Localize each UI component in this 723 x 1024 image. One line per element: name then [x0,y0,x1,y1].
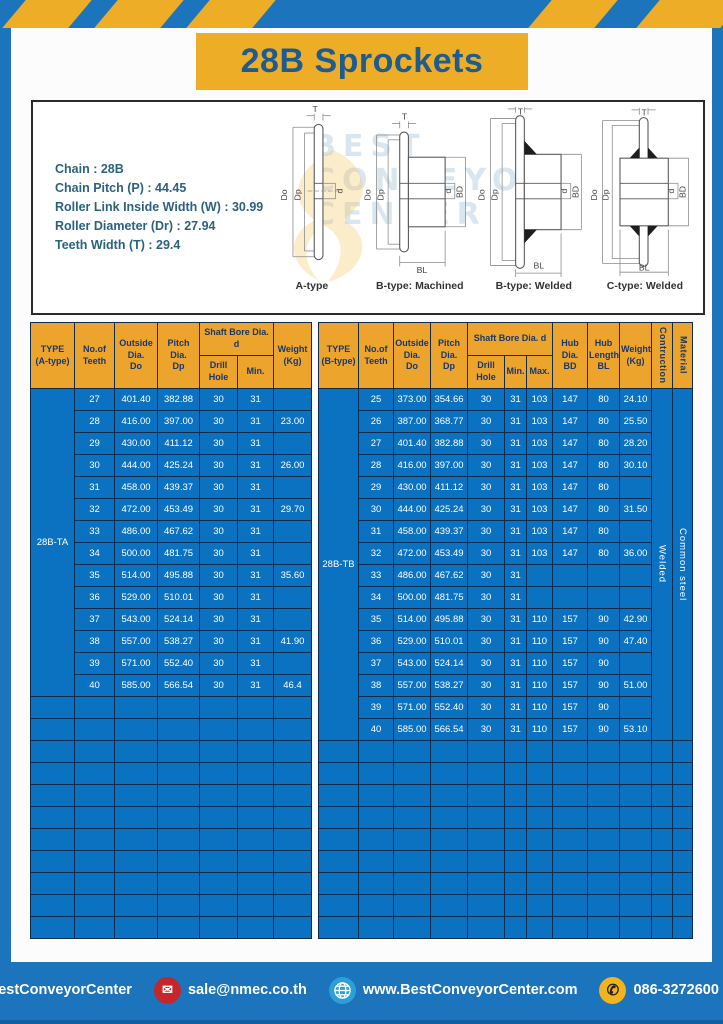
data-cell: 31 [505,521,527,543]
empty-cell [158,895,200,917]
data-cell: 103 [527,389,553,411]
data-cell: 30 [200,675,238,697]
data-cell: 80 [588,477,620,499]
data-cell: 147 [553,521,588,543]
footer-contact-bar: f LINE @BestConveyorCenter ✉ sale@nmec.c… [0,962,723,1024]
data-cell [620,565,652,587]
sprocket-table-b: TYPE (B-type)No.of TeethOutside Dia. DoP… [318,322,693,939]
data-cell: 38 [75,631,115,653]
data-cell: 543.00 [394,653,431,675]
data-cell [588,587,620,609]
empty-cell [31,741,75,763]
header-cell: Pitch Dia. Dp [158,323,200,389]
empty-cell [505,741,527,763]
material-cell: Common steel [673,389,693,741]
data-cell: 103 [527,521,553,543]
data-cell: 500.00 [115,543,158,565]
data-cell: 31 [505,499,527,521]
empty-table-row [31,763,312,785]
empty-cell [238,873,274,895]
data-cell: 566.54 [158,675,200,697]
empty-cell [553,829,588,851]
data-cell: 31 [505,455,527,477]
data-cell: 110 [527,653,553,675]
empty-cell [75,719,115,741]
dim-label-bd: BD [454,186,464,198]
data-cell: 439.37 [158,477,200,499]
data-cell: 39 [75,653,115,675]
data-cell: 571.00 [115,653,158,675]
data-cell: 30 [200,631,238,653]
header-cell: Hub Dia. BD [553,323,588,389]
empty-cell [158,829,200,851]
data-cell: 31 [238,521,274,543]
data-cell: 30 [75,455,115,477]
data-cell [274,543,312,565]
header-cell: TYPE (A-type) [31,323,75,389]
spec-diagram-panel: BEST CONVEYOR CENTER Chain : 28B Chain P… [31,100,705,315]
table-row: 34500.00481.753031 [319,587,693,609]
data-cell: 30 [468,675,505,697]
data-cell: 24.10 [620,389,652,411]
data-cell: 30 [200,411,238,433]
data-cell: 30 [468,455,505,477]
data-cell: 31 [505,411,527,433]
empty-cell [200,851,238,873]
empty-cell [359,851,394,873]
data-cell [620,521,652,543]
table-row: 38557.00538.2730311101579051.00 [319,675,693,697]
data-cell: 40 [75,675,115,697]
data-cell: 31 [505,631,527,653]
data-cell: 486.00 [115,521,158,543]
empty-cell [200,741,238,763]
sprocket-diagrams: T Do Dp d A-type [261,106,699,306]
empty-cell [238,785,274,807]
data-cell: 552.40 [431,697,468,719]
data-cell: 30 [200,477,238,499]
table-row: 33486.00467.623031 [319,565,693,587]
data-cell: 27 [75,389,115,411]
data-cell: 51.00 [620,675,652,697]
empty-cell [553,807,588,829]
empty-cell [588,741,620,763]
data-cell: 157 [553,719,588,741]
empty-cell [115,741,158,763]
data-cell: 585.00 [115,675,158,697]
data-cell: 147 [553,389,588,411]
data-cell [527,565,553,587]
empty-cell [200,785,238,807]
empty-cell [359,785,394,807]
footer-website-group: www.BestConveyorCenter.com [329,977,578,1004]
data-cell: 33 [75,521,115,543]
data-cell: 31 [238,411,274,433]
empty-cell [620,741,652,763]
header-cell: Shaft Bore Dia. d [468,323,553,356]
empty-cell [620,895,652,917]
empty-cell [31,829,75,851]
empty-table-row [31,741,312,763]
data-cell: 90 [588,719,620,741]
empty-cell [431,873,468,895]
empty-cell [527,741,553,763]
empty-cell [527,829,553,851]
empty-cell [115,807,158,829]
data-cell: 25.50 [620,411,652,433]
dim-label-bl: BL [416,265,427,275]
empty-cell [527,763,553,785]
data-cell [620,653,652,675]
empty-cell [359,895,394,917]
header-cell: Max. [527,356,553,389]
data-cell [274,609,312,631]
data-cell: 31 [238,587,274,609]
data-cell: 147 [553,411,588,433]
dim-label-dp: Dp [375,189,385,200]
header-cell: Min. [238,356,274,389]
data-cell: 31 [238,565,274,587]
empty-cell [468,873,505,895]
data-cell: 368.77 [431,411,468,433]
diagram-label-a: A-type [296,280,329,292]
data-cell: 31 [238,433,274,455]
data-cell: 30 [200,653,238,675]
data-cell: 382.88 [431,433,468,455]
data-cell: 387.00 [394,411,431,433]
empty-cell [394,917,431,939]
dim-label-bl: BL [639,262,650,272]
empty-cell [468,763,505,785]
data-cell: 110 [527,697,553,719]
data-cell: 31 [505,565,527,587]
dim-label-d: d [334,188,344,193]
empty-table-row [319,785,693,807]
empty-cell [527,895,553,917]
data-cell: 524.14 [431,653,468,675]
data-cell: 416.00 [394,455,431,477]
table-row: 31458.00439.37303110314780 [319,521,693,543]
empty-cell [588,807,620,829]
empty-cell [468,917,505,939]
data-cell: 354.66 [431,389,468,411]
empty-cell [553,873,588,895]
empty-cell [588,895,620,917]
table-row: 36529.00510.0130311101579047.40 [319,631,693,653]
empty-cell [158,763,200,785]
data-cell: 42.90 [620,609,652,631]
data-cell: 147 [553,477,588,499]
data-cell: 47.40 [620,631,652,653]
empty-cell [468,895,505,917]
empty-cell [527,807,553,829]
empty-cell [527,851,553,873]
top-hazard-stripes [0,0,723,28]
data-cell: 382.88 [158,389,200,411]
empty-table-row [319,807,693,829]
empty-cell [274,741,312,763]
empty-cell [75,697,115,719]
stripe [94,0,183,28]
empty-cell [75,763,115,785]
data-cell: 40 [359,719,394,741]
data-cell: 472.00 [394,543,431,565]
empty-cell [359,873,394,895]
table-b-body: 28B-TB25373.00354.6630311031478024.10Wel… [319,389,693,939]
empty-cell [75,917,115,939]
table-row: 27401.40382.8830311031478028.20 [319,433,693,455]
empty-cell [115,917,158,939]
data-cell: 103 [527,455,553,477]
empty-cell [238,719,274,741]
data-cell: 30 [200,565,238,587]
data-cell: 31 [359,521,394,543]
catalog-page: 28B Sprockets BEST CONVEYOR CENTER Chain… [0,0,723,1024]
data-cell: 31 [505,477,527,499]
type-cell: 28B-TA [31,389,75,697]
b-type-machined-drawing: T Do Dp d BD BL [363,106,477,278]
data-cell: 30 [468,719,505,741]
globe-icon [329,977,356,1004]
data-cell: 458.00 [394,521,431,543]
data-cell: 29.70 [274,499,312,521]
empty-cell [553,763,588,785]
data-cell: 30 [468,389,505,411]
empty-cell [359,741,394,763]
table-row: 28416.00397.0030311031478030.10 [319,455,693,477]
data-cell: 28 [359,455,394,477]
dim-label-dp: Dp [489,189,499,200]
empty-cell [394,785,431,807]
spec-line-teeth: Teeth Width (T) : 29.4 [55,236,290,255]
data-cell: 32 [75,499,115,521]
data-cell: 30 [200,433,238,455]
website-text: www.BestConveyorCenter.com [363,982,578,998]
empty-cell [394,763,431,785]
table-row: 37543.00524.14303111015790 [319,653,693,675]
spec-line-chain: Chain : 28B [55,160,290,179]
data-cell: 31 [238,609,274,631]
data-cell: 31 [505,719,527,741]
data-cell: 31 [238,477,274,499]
data-cell: 90 [588,675,620,697]
empty-cell [359,917,394,939]
empty-table-row [319,763,693,785]
data-cell: 103 [527,499,553,521]
header-cell: No.of Teeth [75,323,115,389]
data-cell: 25 [359,389,394,411]
data-cell: 36 [359,631,394,653]
empty-cell [75,785,115,807]
data-cell: 30 [468,653,505,675]
data-cell: 39 [359,697,394,719]
data-cell: 425.24 [158,455,200,477]
data-cell: 30 [200,455,238,477]
empty-cell [652,763,673,785]
empty-cell [620,763,652,785]
table-a-body: 28B-TA27401.40382.883031 28416.00397.003… [31,389,312,939]
dim-label-t: T [402,112,408,122]
data-cell [274,477,312,499]
empty-cell [394,851,431,873]
data-cell: 430.00 [394,477,431,499]
empty-cell [673,741,693,763]
b-type-welded-drawing: T Do Dp d BD BL [477,106,591,278]
empty-cell [505,807,527,829]
dim-label-t: T [641,108,647,118]
empty-cell [673,807,693,829]
header-cell: Min. [505,356,527,389]
empty-cell [359,829,394,851]
table-row: 39571.00552.40303111015790 [319,697,693,719]
dim-label-do: Do [591,189,599,200]
empty-cell [200,763,238,785]
table-row: 35514.00495.8830311101579042.90 [319,609,693,631]
data-cell: 30 [200,499,238,521]
data-cell: 38 [359,675,394,697]
empty-cell [652,873,673,895]
empty-cell [505,917,527,939]
empty-cell [200,719,238,741]
dim-label-d: d [443,188,453,193]
empty-cell [158,917,200,939]
dim-label-d: d [666,188,676,193]
table-row: 32472.00453.4930311031478036.00 [319,543,693,565]
empty-cell [527,785,553,807]
data-cell: 80 [588,411,620,433]
data-cell: 37 [359,653,394,675]
empty-cell [115,829,158,851]
data-cell [588,565,620,587]
empty-cell [200,697,238,719]
data-cell: 90 [588,609,620,631]
empty-cell [468,829,505,851]
data-cell: 31 [505,587,527,609]
social-handle-text: @BestConveyorCenter [0,982,132,998]
dim-label-do: Do [477,189,487,200]
empty-cell [588,917,620,939]
data-cell: 80 [588,521,620,543]
empty-cell [673,851,693,873]
empty-cell [274,917,312,939]
table-row: 28B-TB25373.00354.6630311031478024.10Wel… [319,389,693,411]
header-cell: No.of Teeth [359,323,394,389]
empty-cell [238,851,274,873]
data-cell: 425.24 [431,499,468,521]
empty-cell [200,917,238,939]
empty-cell [588,763,620,785]
data-cell: 495.88 [158,565,200,587]
dim-label-bd: BD [570,186,580,198]
empty-cell [238,697,274,719]
empty-cell [319,807,359,829]
data-cell: 401.40 [394,433,431,455]
empty-cell [31,895,75,917]
data-cell: 557.00 [115,631,158,653]
data-cell [527,587,553,609]
header-cell: Weight (Kg) [274,323,312,389]
data-cell: 110 [527,609,553,631]
empty-cell [505,851,527,873]
dim-label-dp: Dp [292,189,302,200]
empty-cell [394,829,431,851]
empty-cell [673,785,693,807]
empty-cell [620,851,652,873]
empty-cell [31,719,75,741]
data-cell: 514.00 [394,609,431,631]
header-cell: Drill Hole [468,356,505,389]
data-cell [553,587,588,609]
data-cell [553,565,588,587]
empty-cell [75,895,115,917]
empty-cell [652,807,673,829]
data-cell [274,389,312,411]
empty-cell [394,873,431,895]
table-row: 30444.00425.2430311031478031.50 [319,499,693,521]
data-cell: 31.50 [620,499,652,521]
data-cell: 30 [468,499,505,521]
empty-cell [652,851,673,873]
empty-cell [31,785,75,807]
data-cell: 46.4 [274,675,312,697]
data-cell: 30 [468,587,505,609]
data-cell: 157 [553,675,588,697]
empty-cell [673,873,693,895]
empty-table-row [31,829,312,851]
data-cell: 31 [238,653,274,675]
empty-cell [115,873,158,895]
email-icon: ✉ [154,977,181,1004]
empty-cell [673,895,693,917]
empty-cell [274,785,312,807]
empty-cell [75,829,115,851]
table-row: 28B-TA27401.40382.883031 [31,389,312,411]
empty-cell [158,741,200,763]
table-a-header: TYPE (A-type)No.of TeethOutside Dia. DoP… [31,323,312,389]
empty-table-row [319,895,693,917]
data-cell: 33 [359,565,394,587]
data-cell: 557.00 [394,675,431,697]
empty-cell [468,785,505,807]
empty-table-row [31,697,312,719]
empty-cell [620,873,652,895]
data-cell: 373.00 [394,389,431,411]
data-cell: 29 [359,477,394,499]
data-cell [274,521,312,543]
diagram-label-b-welded: B-type: Welded [496,280,572,292]
empty-cell [431,917,468,939]
empty-cell [505,785,527,807]
empty-cell [158,851,200,873]
empty-table-row [31,807,312,829]
table-b-header: TYPE (B-type)No.of TeethOutside Dia. DoP… [319,323,693,389]
chain-spec-list: Chain : 28B Chain Pitch (P) : 44.45 Roll… [55,160,290,255]
data-cell: 510.01 [158,587,200,609]
data-cell: 110 [527,675,553,697]
data-cell: 529.00 [394,631,431,653]
data-cell: 524.14 [158,609,200,631]
email-text: sale@nmec.co.th [188,982,307,998]
data-cell: 30 [200,609,238,631]
empty-cell [158,807,200,829]
empty-cell [200,895,238,917]
empty-cell [431,741,468,763]
empty-cell [673,917,693,939]
data-cell: 444.00 [115,455,158,477]
empty-cell [31,873,75,895]
data-cell: 453.49 [158,499,200,521]
data-cell: 467.62 [158,521,200,543]
